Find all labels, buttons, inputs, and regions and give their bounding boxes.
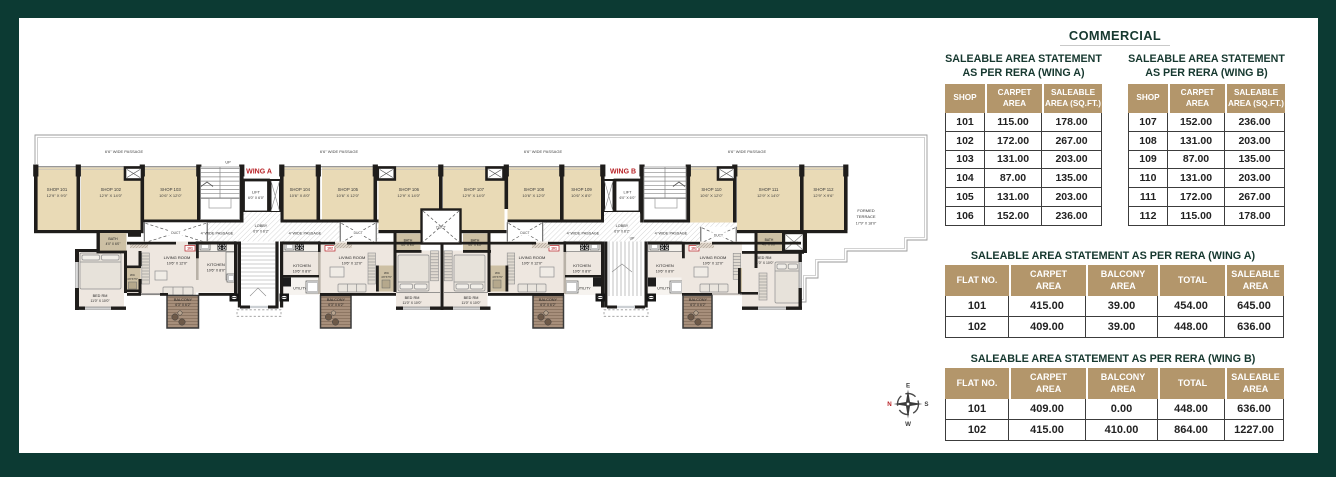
svg-text:KITCHEN: KITCHEN [207, 262, 225, 267]
svg-text:LOBBY: LOBBY [616, 224, 629, 228]
svg-text:WC: WC [495, 271, 501, 275]
svg-text:4’ WIDE PASSAGE: 4’ WIDE PASSAGE [201, 232, 234, 236]
svg-text:11’0" X 10’0": 11’0" X 10’0" [461, 301, 481, 305]
svg-text:BATH: BATH [765, 238, 774, 242]
svg-text:6’6" WIDE PASSAGE: 6’6" WIDE PASSAGE [524, 149, 563, 154]
svg-text:BALCONY: BALCONY [327, 298, 346, 302]
svg-text:4’0"X7’6": 4’0"X7’6" [381, 275, 392, 279]
svg-text:4’0"X7’6": 4’0"X7’6" [492, 275, 503, 279]
svg-text:6’6" WIDE PASSAGE: 6’6" WIDE PASSAGE [320, 149, 359, 154]
svg-text:KITCHEN: KITCHEN [573, 263, 591, 268]
svg-text:BALCONY: BALCONY [539, 298, 558, 302]
svg-text:10’6" X 8’0": 10’6" X 8’0" [573, 270, 592, 274]
svg-text:SHOP 104: SHOP 104 [290, 187, 311, 192]
svg-text:LOBBY: LOBBY [255, 224, 268, 228]
svg-text:SHOP 102: SHOP 102 [101, 187, 122, 192]
svg-text:10’6" X 12’0": 10’6" X 12’0" [522, 262, 543, 266]
svg-text:LIFT: LIFT [252, 190, 261, 195]
svg-text:6’6" WIDE PASSAGE: 6’6" WIDE PASSAGE [728, 149, 767, 154]
svg-text:10’6" X 8’0": 10’6" X 8’0" [293, 270, 312, 274]
svg-text:10’6" X 12’0": 10’6" X 12’0" [522, 193, 545, 198]
svg-text:11’0" X 10’0": 11’0" X 10’0" [90, 299, 110, 303]
svg-text:6’0" X 8’2": 6’0" X 8’2" [253, 230, 269, 234]
svg-text:LIVING ROOM: LIVING ROOM [339, 255, 366, 260]
svg-text:12’9" X 14’0": 12’9" X 14’0" [757, 193, 780, 198]
svg-text:LIVING ROOM: LIVING ROOM [700, 255, 727, 260]
svg-text:LIFT: LIFT [624, 190, 633, 195]
svg-text:LIVING ROOM: LIVING ROOM [519, 255, 546, 260]
svg-text:DUCT: DUCT [436, 226, 447, 230]
svg-text:10’6" X 8’0": 10’6" X 8’0" [656, 270, 675, 274]
svg-text:UP: UP [225, 161, 231, 165]
svg-text:DUCT: DUCT [354, 231, 363, 235]
svg-text:SHOP 110: SHOP 110 [701, 187, 722, 192]
svg-text:6’3" X 6’2": 6’3" X 6’2" [690, 303, 706, 307]
svg-text:6’6" WIDE PASSAGE: 6’6" WIDE PASSAGE [105, 149, 144, 154]
svg-text:10’6" X 12’0": 10’6" X 12’0" [700, 193, 723, 198]
svg-text:DUCT: DUCT [714, 233, 723, 237]
svg-text:BALCONY: BALCONY [174, 298, 193, 302]
svg-text:BED RM: BED RM [464, 296, 479, 300]
svg-text:KITCHEN: KITCHEN [293, 263, 311, 268]
svg-text:4’0"X7’6": 4’0"X7’6" [127, 277, 138, 281]
svg-text:12’9" X 9’0": 12’9" X 9’0" [47, 193, 68, 198]
svg-text:LIVING ROOM: LIVING ROOM [164, 255, 191, 260]
svg-text:11’0" X 10’0": 11’0" X 10’0" [402, 301, 422, 305]
svg-text:S: S [924, 401, 928, 408]
svg-text:SHOP 101: SHOP 101 [47, 187, 68, 192]
svg-text:BED RM: BED RM [93, 294, 108, 298]
svg-text:4’ WIDE PASSAGE: 4’ WIDE PASSAGE [289, 232, 322, 236]
svg-text:6’0" X 6’0": 6’0" X 6’0" [248, 196, 265, 200]
svg-text:WC: WC [130, 273, 136, 277]
svg-text:BED RM: BED RM [405, 296, 420, 300]
svg-text:10’6" X 12’0": 10’6" X 12’0" [342, 262, 363, 266]
svg-text:DUCT: DUCT [171, 231, 180, 235]
svg-text:FORMED: FORMED [857, 208, 874, 213]
svg-text:10’6" X 8’0": 10’6" X 8’0" [207, 269, 226, 273]
svg-text:SHOP 112: SHOP 112 [813, 187, 834, 192]
svg-text:KITCHEN: KITCHEN [656, 263, 674, 268]
svg-text:4’ WIDE PASSAGE: 4’ WIDE PASSAGE [567, 232, 600, 236]
svg-text:WING B: WING B [610, 169, 636, 176]
svg-text:4’0" X 6’0": 4’0" X 6’0" [106, 242, 121, 246]
svg-text:SHOP 108: SHOP 108 [524, 187, 545, 192]
svg-text:4’ WIDE PASSAGE: 4’ WIDE PASSAGE [655, 232, 688, 236]
svg-text:SHOP 103: SHOP 103 [160, 187, 181, 192]
svg-text:TERRACE: TERRACE [856, 214, 875, 219]
svg-text:BED RM: BED RM [757, 256, 772, 260]
svg-text:6’3" X 6’2": 6’3" X 6’2" [328, 303, 344, 307]
svg-text:12’9" X 14’0": 12’9" X 14’0" [99, 193, 122, 198]
svg-text:6’0" X 6’0": 6’0" X 6’0" [619, 196, 636, 200]
svg-text:12’9" X 14’0": 12’9" X 14’0" [462, 193, 485, 198]
svg-text:UP: UP [630, 237, 635, 241]
svg-text:12’9" X 9’6": 12’9" X 9’6" [813, 193, 834, 198]
svg-text:DUCT: DUCT [520, 231, 529, 235]
svg-text:10’6" X 12’0": 10’6" X 12’0" [336, 193, 359, 198]
svg-text:N: N [887, 401, 892, 408]
svg-text:SHOP 111: SHOP 111 [759, 187, 779, 192]
svg-text:WC: WC [384, 271, 390, 275]
svg-text:WING A: WING A [246, 169, 272, 176]
svg-text:101: 101 [187, 247, 193, 251]
svg-text:BATH: BATH [108, 237, 118, 241]
svg-text:10’6" X 12’0": 10’6" X 12’0" [703, 262, 724, 266]
svg-text:102: 102 [327, 247, 333, 251]
svg-text:12’9" X 14’0": 12’9" X 14’0" [397, 193, 420, 198]
svg-text:6’0" X 8’2": 6’0" X 8’2" [614, 230, 630, 234]
svg-text:10’6" X 12’0": 10’6" X 12’0" [159, 193, 182, 198]
svg-text:101: 101 [551, 247, 557, 251]
svg-text:W: W [905, 421, 911, 428]
svg-text:6’3" X 6’2": 6’3" X 6’2" [540, 303, 556, 307]
svg-text:BALCONY: BALCONY [689, 298, 708, 302]
svg-text:UTILITY: UTILITY [577, 287, 591, 291]
svg-text:10’6" X 8’0": 10’6" X 8’0" [289, 193, 310, 198]
svg-text:SHOP 109: SHOP 109 [571, 187, 592, 192]
svg-text:SHOP 105: SHOP 105 [338, 187, 359, 192]
svg-text:UTILITY: UTILITY [293, 287, 307, 291]
svg-text:6’3" X 6’2": 6’3" X 6’2" [175, 303, 191, 307]
svg-text:10’6" X 8’0": 10’6" X 8’0" [571, 193, 592, 198]
svg-text:17’9" X 18’0": 17’9" X 18’0" [856, 222, 877, 226]
svg-text:SHOP 107: SHOP 107 [464, 187, 485, 192]
svg-text:10’6" X 12’0": 10’6" X 12’0" [167, 262, 188, 266]
svg-text:E: E [906, 383, 910, 390]
svg-text:UTILITY: UTILITY [657, 287, 671, 291]
svg-text:SHOP 106: SHOP 106 [399, 187, 420, 192]
